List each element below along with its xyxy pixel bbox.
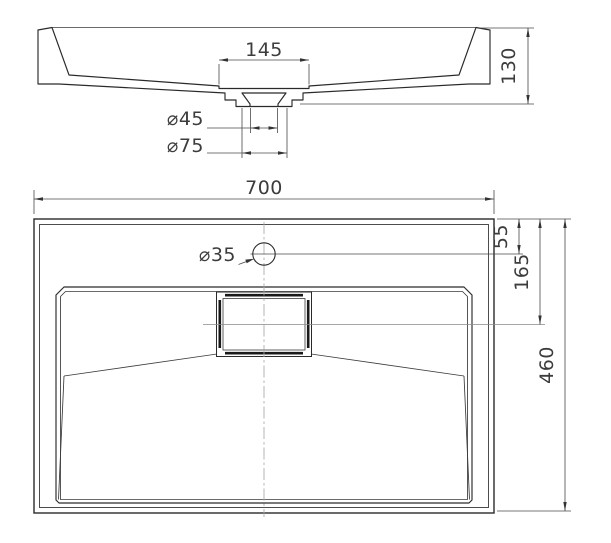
dim-faucet-offset: 55 (490, 219, 521, 254)
technical-drawing-canvas: 145 ⌀45 ⌀75 130 (0, 0, 611, 543)
dim-drain-offset-label: 165 (511, 253, 533, 291)
dim-width: 700 (34, 177, 494, 214)
arrowhead (517, 245, 520, 254)
dim-section-height: 130 (300, 28, 534, 104)
arrowhead (251, 126, 260, 129)
dim-drain-offset: 165 (511, 219, 542, 325)
dim-drain-outer-label: ⌀75 (167, 135, 204, 157)
arrowhead (34, 197, 43, 200)
dim-drain-inner-label: ⌀45 (167, 108, 204, 130)
technical-drawing-page: 145 ⌀45 ⌀75 130 (0, 0, 611, 543)
dim-faucet-offset-label: 55 (490, 224, 512, 249)
arrowhead (517, 219, 520, 228)
floor-fold-line (64, 354, 217, 376)
dim-width-label: 700 (245, 177, 283, 199)
dim-depth-label: 460 (536, 346, 558, 384)
dim-recess-width: 145 (219, 39, 309, 85)
dim-recess-width-label: 145 (245, 39, 283, 61)
arrowhead (242, 151, 251, 154)
arrowhead (526, 95, 529, 104)
dim-depth: 460 (536, 219, 567, 511)
faucet-leader (239, 262, 247, 265)
dim-faucet-hole-label: ⌀35 (199, 244, 236, 266)
arrowhead (269, 126, 278, 129)
plan-view: ⌀35 700 55 165 (34, 177, 571, 517)
arrowhead (485, 197, 494, 200)
arrowhead (563, 219, 566, 228)
dim-section-height-label: 130 (498, 47, 520, 85)
arrowhead (278, 151, 287, 154)
floor-fold-line (464, 376, 470, 500)
arrowhead (526, 28, 529, 37)
dim-drain-inner-diameter: ⌀45 (167, 108, 278, 133)
arrowhead (538, 219, 541, 228)
arrowhead (219, 58, 228, 61)
arrowhead (538, 316, 541, 325)
floor-fold-line (59, 376, 65, 500)
section-view: 145 ⌀45 ⌀75 130 (38, 28, 534, 159)
arrowhead (563, 502, 566, 511)
arrowhead (245, 259, 254, 263)
arrowhead (300, 58, 309, 61)
floor-fold-line (311, 354, 464, 376)
dim-faucet-hole: ⌀35 (199, 244, 254, 266)
